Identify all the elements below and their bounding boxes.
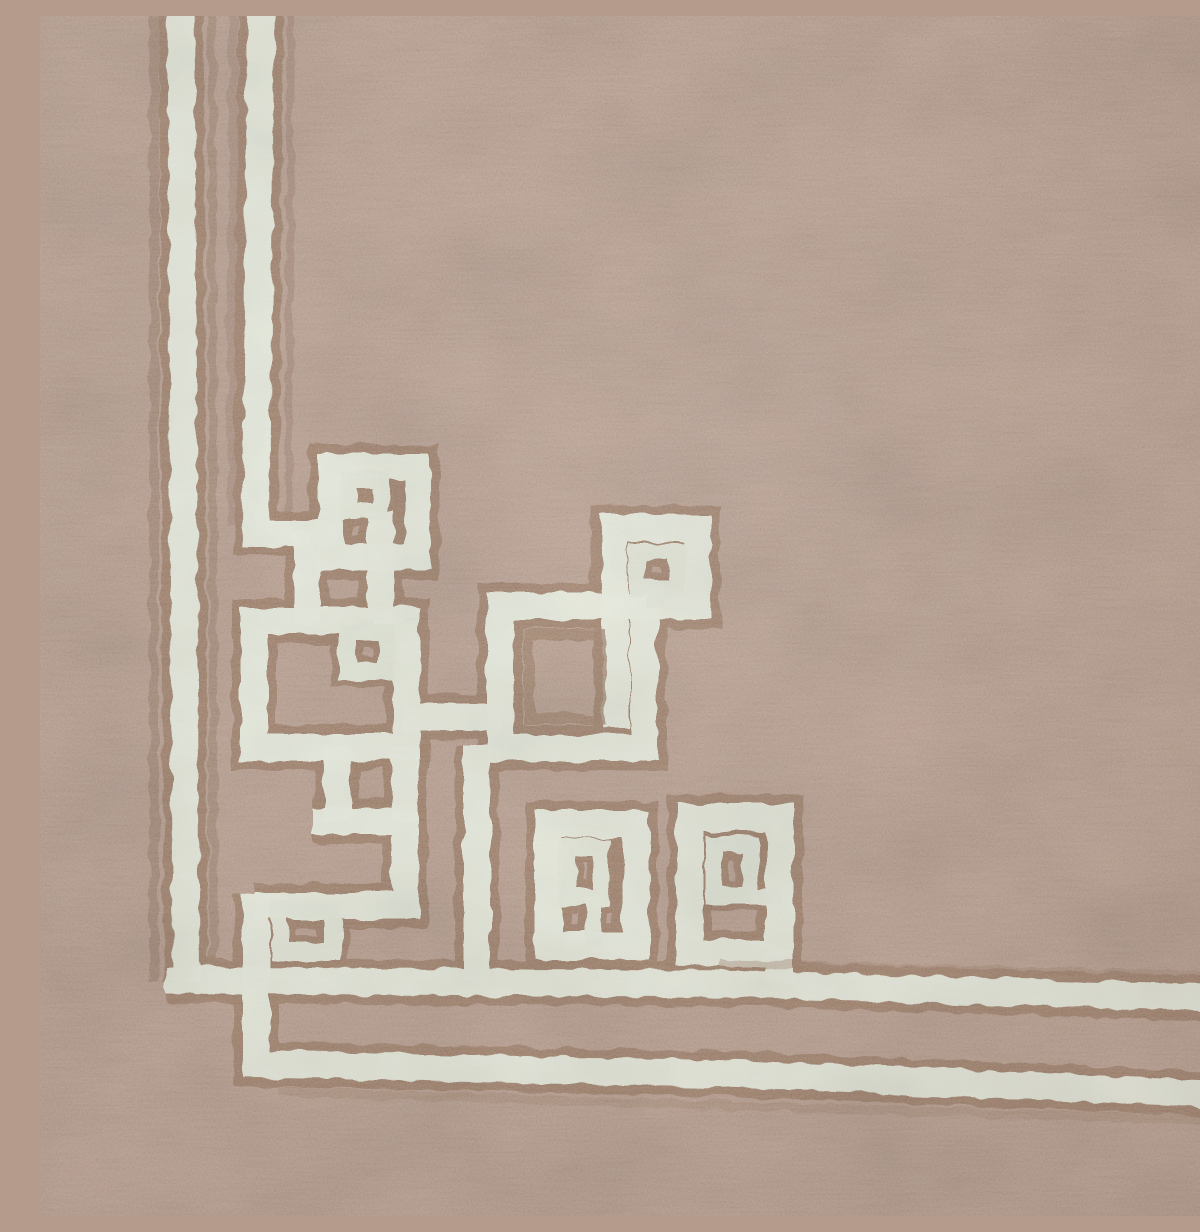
rug-pattern-svg <box>40 16 1200 1216</box>
rug-photo <box>40 16 1200 1216</box>
fabric-mottle-shading <box>40 16 1200 1216</box>
